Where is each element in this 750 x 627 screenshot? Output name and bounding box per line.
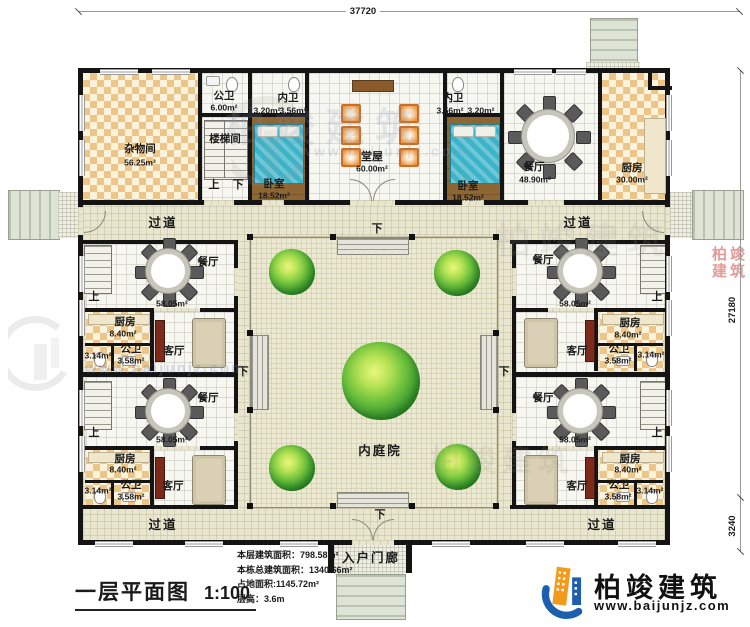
- dimension-right-main: 27180: [728, 293, 738, 327]
- round-table: [146, 249, 190, 293]
- column: [493, 234, 499, 240]
- column: [409, 234, 415, 240]
- area-label-bedroom-right: 18.52m²: [452, 193, 484, 202]
- tree-icon: [435, 444, 481, 490]
- round-table: [558, 249, 602, 293]
- label-courtyard-down-left: 下: [238, 366, 249, 378]
- unit2-stairs: [640, 245, 668, 294]
- column: [493, 407, 499, 413]
- label-unit3-up: 上: [652, 427, 663, 439]
- window: [280, 541, 318, 547]
- page-title: 一层平面图: [75, 576, 190, 606]
- floor-plan-canvas: 柏竣建筑 www.baijunjz.com 柏竣建筑 www.baijunjz.…: [0, 0, 750, 627]
- wall-segment: [82, 308, 154, 312]
- label-courtyard-down-right: 下: [499, 366, 510, 378]
- window: [666, 95, 672, 131]
- label-unit3-bath-small: 3.14m²: [637, 486, 664, 495]
- window: [79, 140, 85, 176]
- chair: [189, 406, 204, 419]
- area-label-storage: 56.25m²: [124, 158, 156, 167]
- round-table: [146, 389, 190, 433]
- door-gap: [665, 207, 670, 235]
- tree-icon: [269, 249, 315, 295]
- wall-segment: [500, 68, 504, 205]
- area-label-bath-left-2: 3.56m²: [280, 106, 307, 115]
- unit1-stairs: [84, 381, 112, 430]
- label-unit3-bath: 公卫: [609, 480, 630, 492]
- wall-segment: [82, 446, 154, 450]
- room-label-hall: 堂屋: [361, 151, 383, 163]
- brand-logo-icon: [538, 564, 590, 620]
- window: [666, 390, 672, 426]
- chair: [601, 406, 616, 419]
- label-corridor-top-left: 过道: [148, 217, 177, 231]
- toilet-icon: [288, 77, 300, 92]
- exterior-steps-top-right: [590, 18, 638, 64]
- tree-icon-center: [342, 342, 420, 420]
- window: [432, 541, 470, 547]
- label-unit3-dining: 餐厅: [533, 393, 554, 405]
- label-unit2-kitchen: 厨房: [620, 318, 641, 330]
- label-unit0-kitchen: 厨房: [115, 317, 136, 329]
- hall-chair: [399, 104, 419, 123]
- dining-table-set: [505, 93, 591, 179]
- room-label-bath-right: 内卫: [443, 93, 464, 105]
- chair: [543, 96, 556, 111]
- pillow: [475, 126, 496, 137]
- window: [152, 69, 190, 75]
- courtyard-step-top: [337, 238, 409, 255]
- area-label-bath-left-1: 3.20m²: [254, 106, 281, 115]
- label-corridor-bottom-right: 过道: [587, 519, 616, 533]
- area-label-kitchen-top: 30.00m²: [616, 175, 648, 184]
- stat-floor-area: 本层建筑面积：798.58m²: [237, 548, 353, 563]
- label-unit0-up: 上: [89, 291, 100, 303]
- label-unit2-kitchen-area: 8.40m²: [615, 330, 642, 339]
- dimension-line-right: [740, 70, 741, 552]
- watermark-stamp: 柏竣建筑: [712, 246, 748, 280]
- sink-icon: [206, 76, 220, 86]
- column: [247, 330, 253, 336]
- label-unit1-bath-small: 3.14m²: [85, 486, 112, 495]
- hall-chair: [399, 126, 419, 145]
- label-unit1-living: 客厅: [163, 481, 184, 493]
- storage-floor: [83, 73, 198, 200]
- label-unit2-living: 客厅: [567, 346, 588, 358]
- window: [79, 300, 85, 336]
- building-stats: 本层建筑面积：798.58m² 本栋总建筑面积：1340.66m² 占地面积:1…: [237, 548, 353, 606]
- dimension-line-top: [78, 11, 740, 12]
- stair-room-rail: [224, 120, 225, 178]
- window: [666, 436, 672, 472]
- courtyard-step-bottom: [337, 492, 409, 508]
- wall-segment: [512, 308, 548, 312]
- wall-segment: [443, 68, 447, 205]
- door-gap: [204, 200, 234, 205]
- column: [409, 503, 415, 509]
- label-down: 下: [233, 179, 244, 191]
- exterior-steps-right: [692, 190, 744, 240]
- window: [618, 541, 656, 547]
- area-label-bedroom-left: 18.52m²: [258, 191, 290, 200]
- wall-segment: [510, 505, 666, 509]
- brand-website: www.baijunjz.com: [594, 598, 730, 613]
- room-label-stair-room: 楼梯间: [209, 134, 241, 146]
- wall-segment: [598, 68, 602, 205]
- label-unit0-dining-area: 58.05m²: [156, 299, 188, 308]
- landing-right: [670, 192, 692, 238]
- label-unit0-kitchen-area: 8.40m²: [110, 329, 137, 338]
- chair: [601, 266, 616, 279]
- dimension-right-lower: 3240: [728, 511, 738, 540]
- room-label-kitchen-top: 厨房: [622, 163, 643, 175]
- wall-segment: [648, 86, 672, 90]
- room-label-bedroom-right: 卧室: [458, 181, 479, 193]
- door-gap: [352, 540, 394, 545]
- room-label-bath-left: 内卫: [278, 93, 299, 105]
- label-unit1-up: 上: [89, 427, 100, 439]
- window: [526, 541, 564, 547]
- dimension-top-width: 37720: [346, 7, 380, 17]
- tree-icon: [434, 250, 480, 296]
- label-corridor-top-right: 过道: [563, 217, 592, 231]
- courtyard-step-right: [480, 335, 498, 410]
- area-label-hall: 60.00m²: [356, 164, 388, 173]
- label-unit2-dining-area: 58.05m²: [559, 299, 591, 308]
- wall-segment: [406, 545, 412, 573]
- label-unit2-dining: 餐厅: [533, 255, 554, 267]
- column: [247, 234, 253, 240]
- door-gap: [512, 413, 516, 441]
- door-gap: [78, 207, 83, 235]
- tree-icon: [269, 445, 315, 491]
- window: [79, 436, 85, 472]
- label-unit3-living: 客厅: [567, 481, 588, 493]
- column: [330, 503, 336, 509]
- title-block: 一层平面图 1:100: [75, 576, 256, 611]
- window: [79, 256, 85, 292]
- label-unit2-bath-area: 3.58m²: [605, 356, 632, 365]
- door-gap: [234, 268, 238, 296]
- stat-floor-height: 层高：3.6m: [237, 592, 353, 607]
- room-label-storage: 杂物间: [124, 144, 156, 156]
- label-unit3-bath-area: 3.58m²: [605, 492, 632, 501]
- wall-segment: [150, 450, 154, 505]
- area-label-dining-top: 48.90m²: [519, 175, 551, 184]
- hall-floor: [309, 73, 443, 200]
- dining-table-set: [545, 236, 615, 306]
- courtyard-step-left: [251, 335, 269, 410]
- label-unit1-dining: 餐厅: [198, 393, 219, 405]
- label-unit1-kitchen-area: 8.40m²: [110, 465, 137, 474]
- landing-left: [58, 192, 80, 238]
- label-unit0-living: 客厅: [164, 346, 185, 358]
- column: [247, 407, 253, 413]
- label-unit1-bath-area: 3.58m²: [118, 492, 145, 501]
- label-unit3-dining-area: 58.05m²: [559, 435, 591, 444]
- window: [514, 69, 552, 75]
- label-courtyard-down-top: 下: [372, 223, 383, 235]
- column: [330, 234, 336, 240]
- pillow: [453, 126, 474, 137]
- column: [493, 503, 499, 509]
- label-unit0-bath-area: 3.58m²: [118, 356, 145, 365]
- window: [666, 300, 672, 336]
- window: [666, 256, 672, 292]
- label-unit3-kitchen-area: 8.40m²: [615, 465, 642, 474]
- window: [79, 95, 85, 131]
- round-table: [522, 110, 574, 162]
- area-label-bath-right-2: 3.20m²: [468, 106, 495, 115]
- area-label-public-bath: 6.00m²: [211, 103, 238, 112]
- wall-segment: [82, 505, 238, 509]
- label-unit0-bath: 公卫: [121, 344, 142, 356]
- column: [247, 503, 253, 509]
- room-label-public-bath: 公卫: [214, 91, 235, 103]
- wall-segment: [594, 446, 666, 450]
- wall-segment: [150, 312, 154, 371]
- unit3-stairs: [640, 381, 668, 430]
- exterior-steps-left: [8, 190, 60, 240]
- window: [556, 69, 586, 75]
- hall-chair: [341, 104, 361, 123]
- label-courtyard: 内庭院: [358, 445, 402, 459]
- stat-footprint-area: 占地面积:1145.72m²: [237, 577, 353, 592]
- label-unit0-bath-small: 3.14m²: [85, 351, 112, 360]
- window: [95, 541, 133, 547]
- label-unit1-bath: 公卫: [121, 480, 142, 492]
- column: [493, 330, 499, 336]
- window: [79, 390, 85, 426]
- label-unit2-bath-small: 3.14m²: [638, 350, 665, 359]
- sofa: [524, 318, 558, 368]
- toilet-icon: [452, 77, 464, 92]
- door-gap: [234, 413, 238, 441]
- watermark-logo-icon: [8, 316, 68, 406]
- room-label-bedroom-left: 卧室: [264, 179, 285, 191]
- door-gap: [512, 268, 516, 296]
- window: [666, 140, 672, 176]
- area-label-bath-right-1: 3.56m²: [437, 106, 464, 115]
- door-gap: [528, 200, 564, 205]
- sofa: [192, 455, 226, 505]
- round-table: [558, 389, 602, 433]
- sofa: [192, 318, 226, 368]
- wall-segment: [200, 308, 236, 312]
- stat-total-area: 本栋总建筑面积：1340.66m²: [237, 563, 353, 578]
- label-up: 上: [209, 179, 220, 191]
- hall-chair: [399, 148, 419, 167]
- wall-segment: [594, 308, 666, 312]
- chair: [508, 131, 523, 144]
- label-courtyard-down-bottom: 下: [375, 509, 386, 521]
- room-label-dining-top: 餐厅: [524, 162, 545, 174]
- dining-table-set: [133, 236, 203, 306]
- label-unit2-bath: 公卫: [609, 344, 630, 356]
- sofa: [524, 455, 558, 505]
- chair: [576, 131, 591, 144]
- wall-segment: [512, 446, 548, 450]
- window: [185, 541, 223, 547]
- label-unit0-dining: 餐厅: [198, 257, 219, 269]
- unit0-stairs: [84, 245, 112, 294]
- label-unit2-up: 上: [652, 291, 663, 303]
- label-corridor-bottom-left: 过道: [148, 519, 177, 533]
- label-unit1-dining-area: 58.05m²: [156, 435, 188, 444]
- hall-chair: [341, 126, 361, 145]
- hall-cabinet: [352, 80, 394, 92]
- wall-segment: [198, 68, 202, 205]
- wall-segment: [200, 446, 236, 450]
- window: [100, 69, 138, 75]
